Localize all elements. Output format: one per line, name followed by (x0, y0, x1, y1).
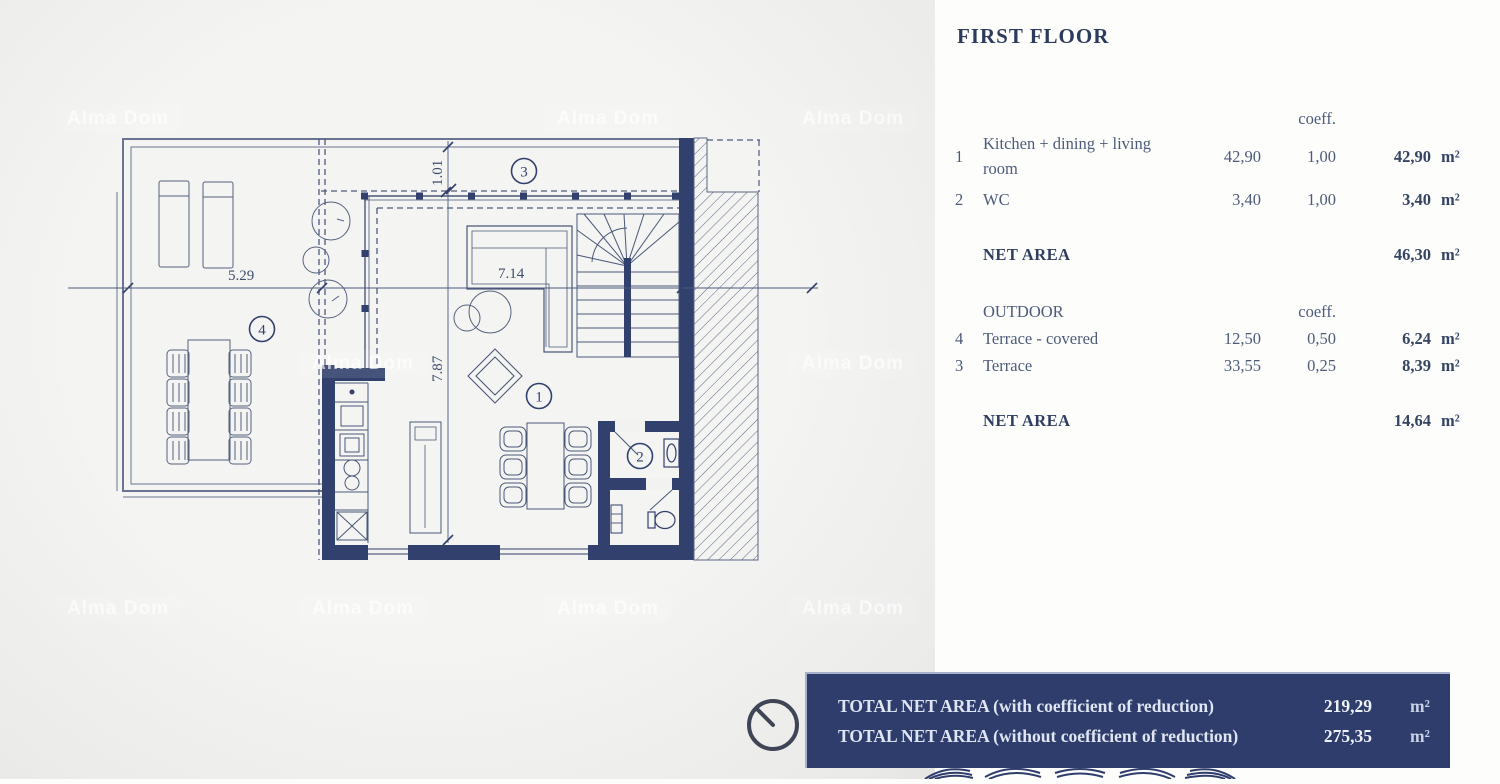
coeff-header: coeff. (1261, 299, 1336, 324)
dining-table-indoor (500, 423, 591, 509)
total-unit: m² (1372, 723, 1442, 749)
net-area-outdoor-row: NET AREA 14,64 m² (955, 408, 1467, 433)
planters (303, 202, 350, 318)
total-with-reduction: TOTAL NET AREA (with coefficient of redu… (807, 693, 1450, 719)
row-label: Terrace - covered (983, 326, 1151, 351)
row-area: 12,50 (1151, 326, 1261, 351)
outdoor-header: OUTDOOR (983, 299, 1151, 324)
row-label: Terrace (983, 353, 1151, 378)
row-number: 2 (955, 187, 983, 212)
sofa (467, 226, 572, 352)
row-unit: m² (1431, 326, 1467, 351)
coeff-header-row: coeff. (955, 106, 1467, 131)
table-row: 3 Terrace 33,55 0,25 8,39 m² (955, 353, 1467, 378)
hatched-section (694, 138, 760, 560)
laurel-decoration-icon (915, 763, 1245, 779)
net-area-unit: m² (1431, 242, 1467, 267)
dim-room-width: 7.14 (498, 266, 525, 282)
net-area-total: 46,30 (1336, 242, 1431, 267)
row-coeff: 1,00 (1261, 144, 1336, 169)
row-label: Kitchen + dining + living room (983, 131, 1151, 181)
net-area-label: NET AREA (983, 408, 1151, 433)
total-unit: m² (1372, 693, 1442, 719)
row-coeff: 0,50 (1261, 326, 1336, 351)
marker-terrace-covered: 4 (258, 323, 266, 339)
total-label: TOTAL NET AREA (with coefficient of redu… (838, 693, 1278, 719)
row-total: 6,24 (1336, 326, 1431, 351)
row-area: 33,55 (1151, 353, 1261, 378)
table-row: 1 Kitchen + dining + living room 42,90 1… (955, 130, 1467, 182)
net-area-total: 14,64 (1336, 408, 1431, 433)
kitchen-island (410, 422, 441, 533)
dim-overhang-depth: 1.01 (430, 160, 446, 186)
table-row: 2 WC 3,40 1,00 3,40 m² (955, 187, 1467, 212)
row-total: 42,90 (1336, 144, 1431, 169)
total-value: 275,35 (1278, 723, 1372, 749)
dim-room-depth: 7.87 (430, 355, 446, 382)
marker-terrace: 3 (520, 165, 528, 181)
row-coeff: 0,25 (1261, 353, 1336, 378)
net-area-indoor-row: NET AREA 46,30 m² (955, 242, 1467, 267)
net-area-label: NET AREA (983, 242, 1151, 267)
row-coeff: 1,00 (1261, 187, 1336, 212)
compass-icon (745, 697, 801, 753)
row-unit: m² (1431, 353, 1467, 378)
row-number: 4 (955, 326, 983, 351)
marker-living: 1 (535, 390, 543, 406)
staircase (577, 214, 679, 357)
walls (322, 138, 694, 560)
row-area: 42,90 (1151, 144, 1261, 169)
kitchen-counter (335, 383, 368, 543)
row-area: 3,40 (1151, 187, 1261, 212)
row-unit: m² (1431, 144, 1467, 169)
marker-wc: 2 (636, 450, 644, 466)
floor-plan-drawing: 5.29 7.14 1.01 7.87 3 4 1 2 (0, 0, 935, 779)
row-number: 1 (955, 144, 983, 169)
row-label: WC (983, 187, 1151, 212)
net-area-unit: m² (1431, 408, 1467, 433)
page-title: FIRST FLOOR (957, 24, 1109, 49)
row-total: 3,40 (1336, 187, 1431, 212)
row-number: 3 (955, 353, 983, 378)
outdoor-dining-set (167, 340, 251, 464)
dim-terrace-width: 5.29 (228, 268, 254, 284)
coeff-header: coeff. (1261, 106, 1336, 131)
outdoor-header-row: OUTDOOR coeff. (955, 299, 1467, 324)
total-value: 219,29 (1278, 693, 1372, 719)
armchair (468, 349, 522, 403)
sun-loungers (159, 181, 233, 268)
totals-bar: TOTAL NET AREA (with coefficient of redu… (805, 672, 1450, 768)
total-label: TOTAL NET AREA (without coefficient of r… (838, 723, 1278, 749)
coffee-tables (454, 291, 511, 333)
row-total: 8,39 (1336, 353, 1431, 378)
table-row: 4 Terrace - covered 12,50 0,50 6,24 m² (955, 326, 1467, 351)
row-unit: m² (1431, 187, 1467, 212)
floor-plan-image: 5.29 7.14 1.01 7.87 3 4 1 2 Alma Dom Alm… (0, 0, 935, 779)
total-without-reduction: TOTAL NET AREA (without coefficient of r… (807, 723, 1450, 749)
